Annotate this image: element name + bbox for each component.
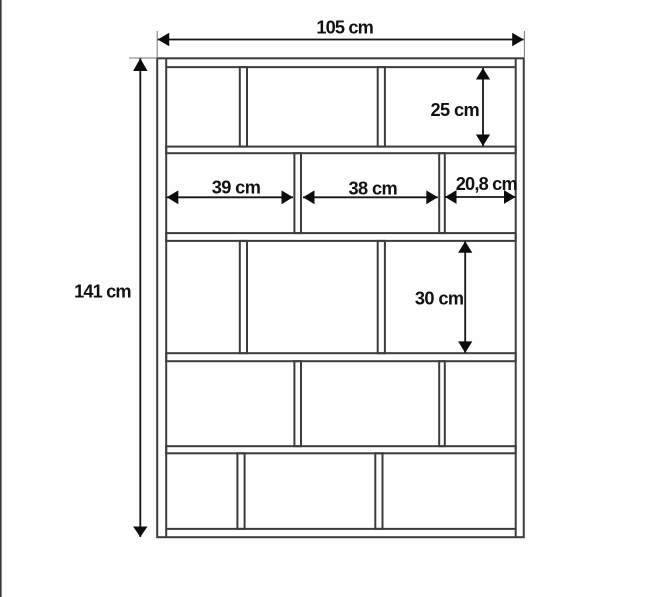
svg-text:25 cm: 25 cm bbox=[431, 100, 480, 120]
svg-text:141 cm: 141 cm bbox=[74, 282, 131, 302]
svg-text:30 cm: 30 cm bbox=[415, 289, 464, 309]
svg-text:39 cm: 39 cm bbox=[212, 178, 261, 198]
svg-text:38 cm: 38 cm bbox=[349, 179, 398, 199]
svg-text:105 cm: 105 cm bbox=[316, 18, 373, 38]
svg-text:20,8 cm: 20,8 cm bbox=[456, 174, 518, 194]
